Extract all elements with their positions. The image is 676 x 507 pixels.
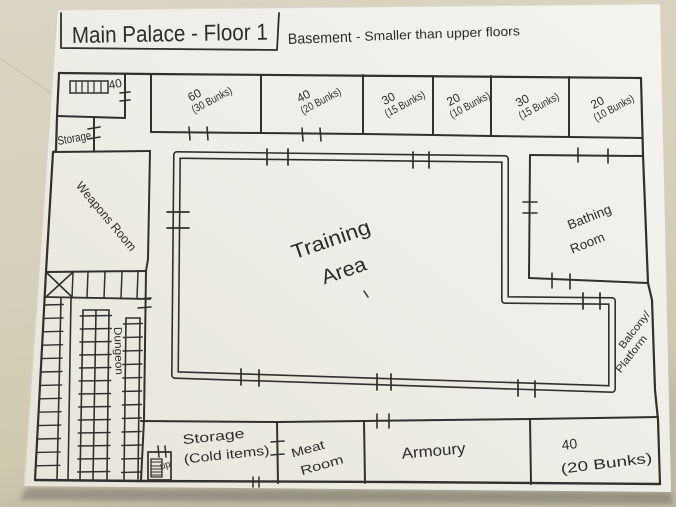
svg-text:Dungeon: Dungeon: [111, 327, 125, 375]
svg-text:Main Palace - Floor 1: Main Palace - Floor 1: [72, 19, 268, 48]
svg-text:40: 40: [561, 435, 579, 453]
svg-text:Basement: Basement: [288, 29, 353, 48]
